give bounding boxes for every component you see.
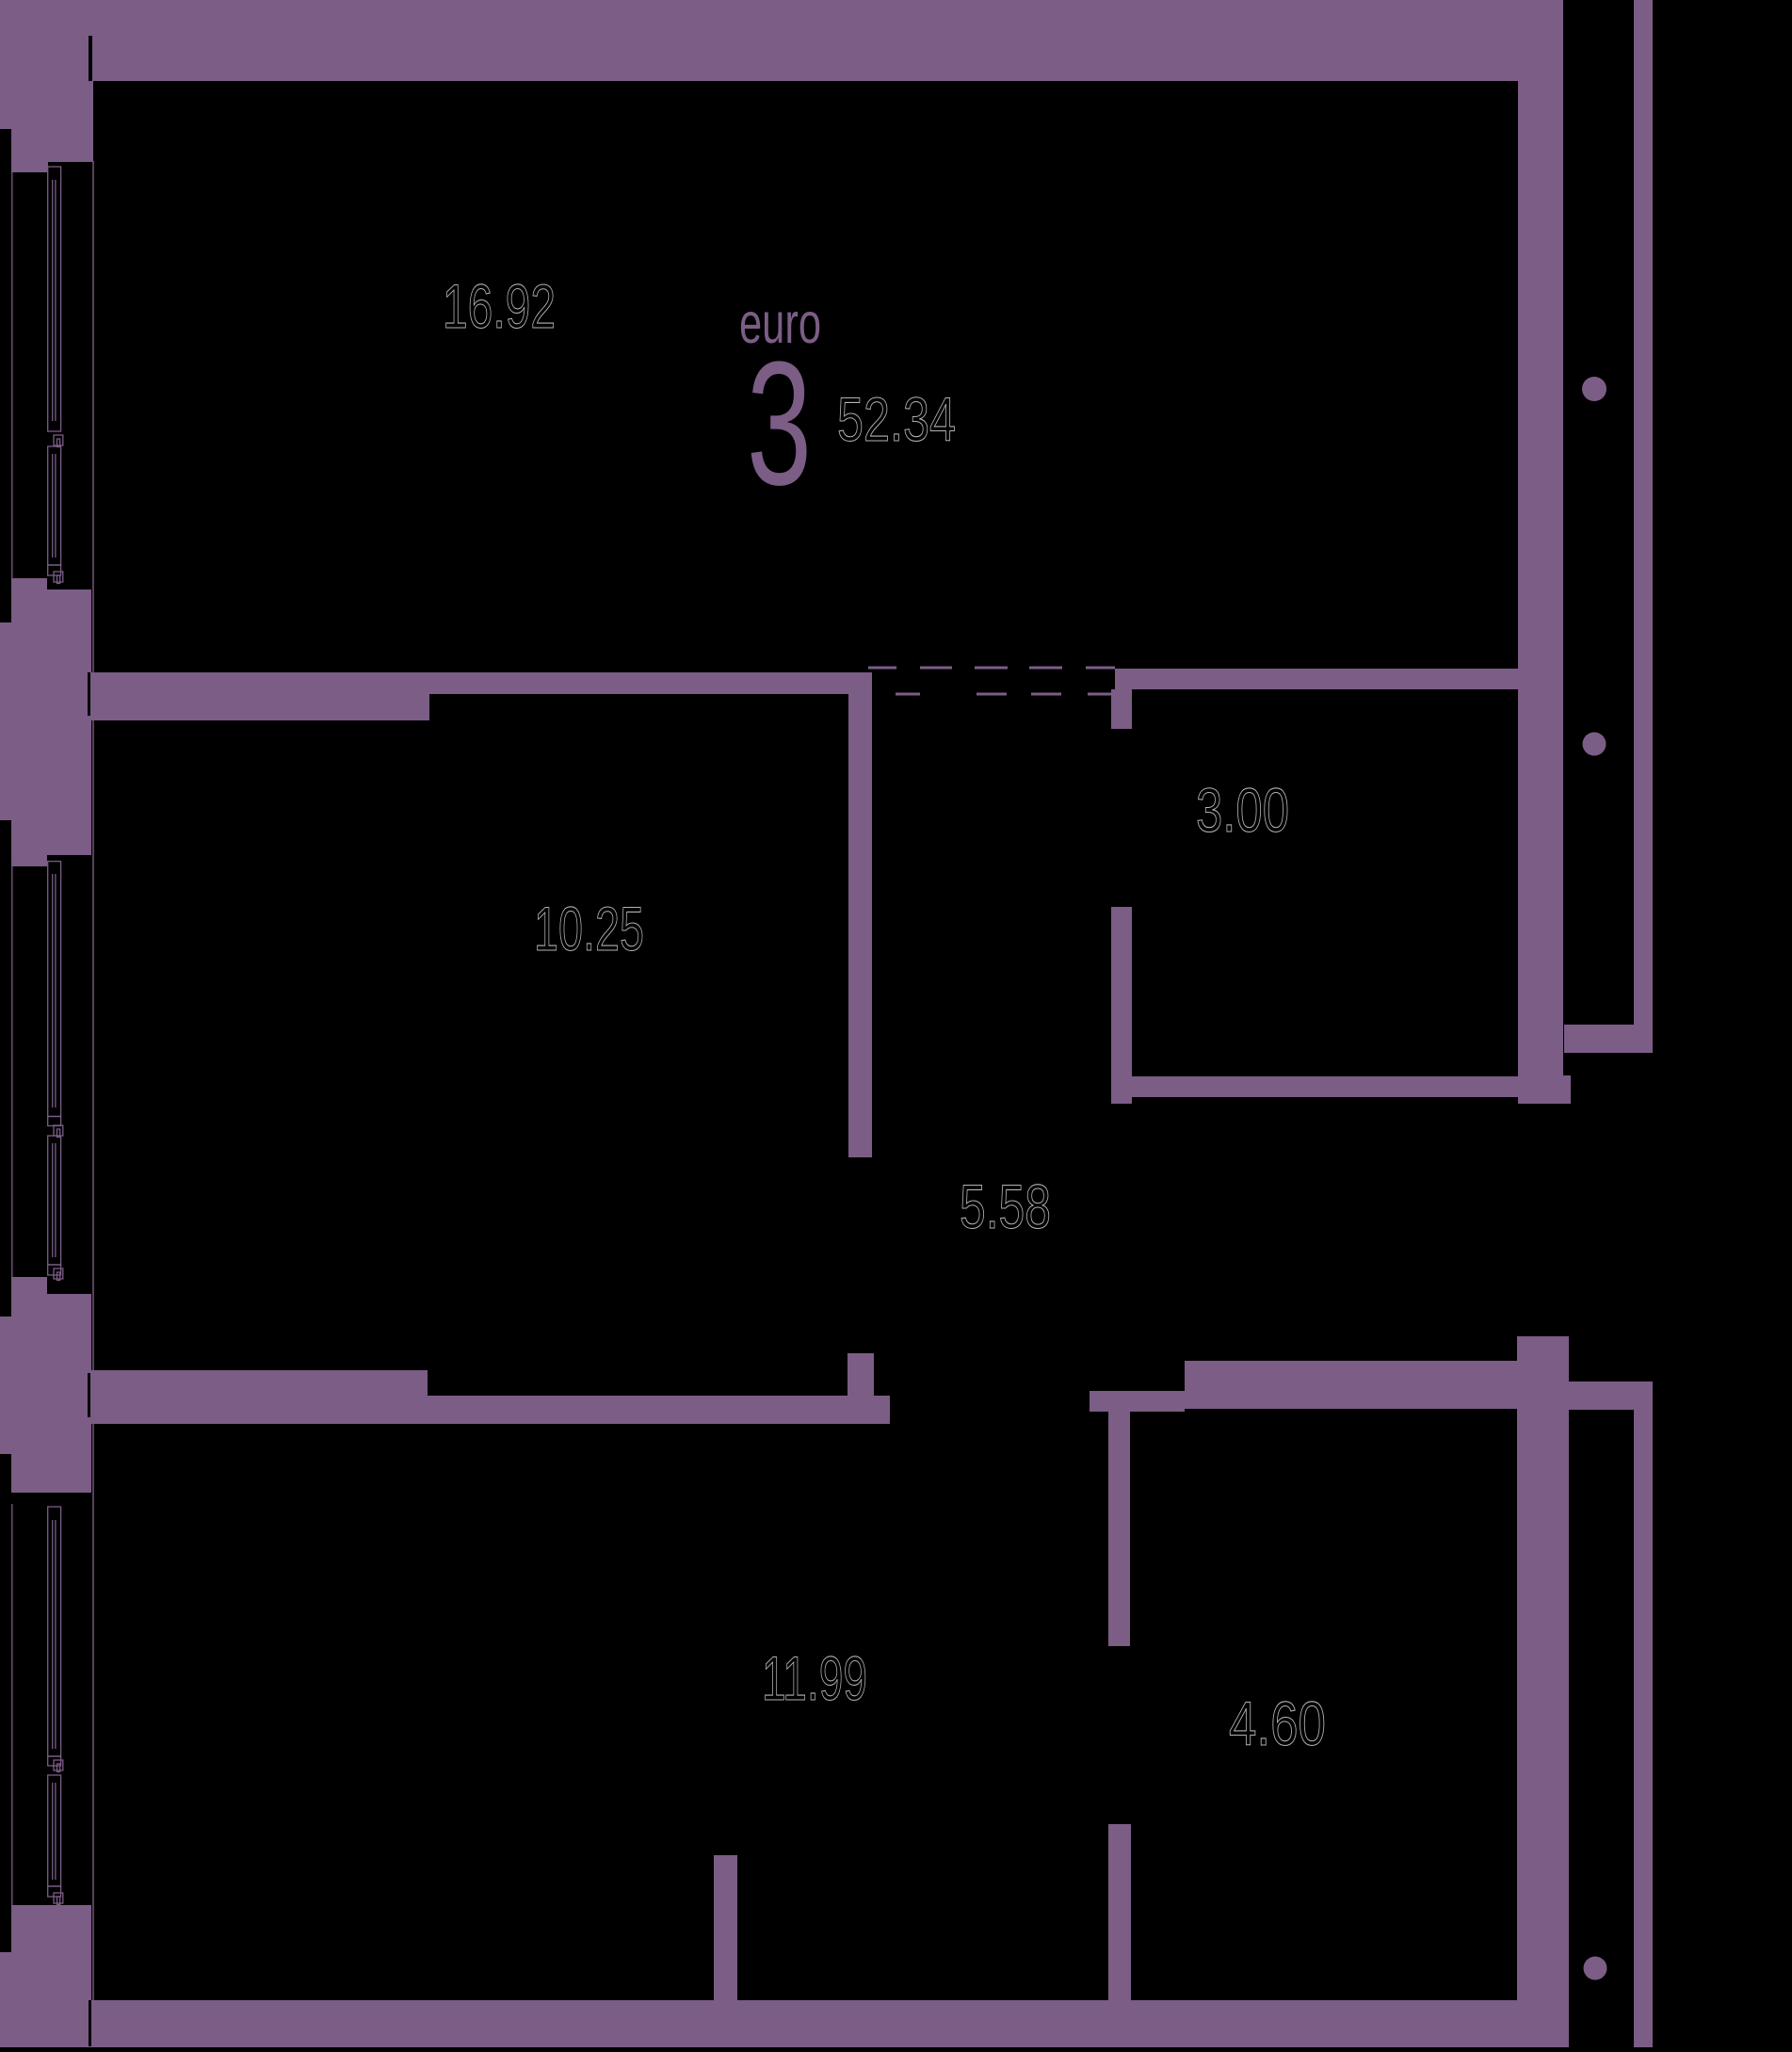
svg-text:5.58: 5.58 xyxy=(960,1171,1051,1241)
svg-text:11.99: 11.99 xyxy=(762,1643,867,1713)
svg-text:10.25: 10.25 xyxy=(534,894,644,963)
svg-text:16.92: 16.92 xyxy=(443,271,556,341)
svg-text:4.60: 4.60 xyxy=(1229,1688,1326,1758)
svg-text:3: 3 xyxy=(747,325,812,522)
svg-text:52.34: 52.34 xyxy=(837,384,956,454)
svg-text:3.00: 3.00 xyxy=(1196,775,1289,845)
